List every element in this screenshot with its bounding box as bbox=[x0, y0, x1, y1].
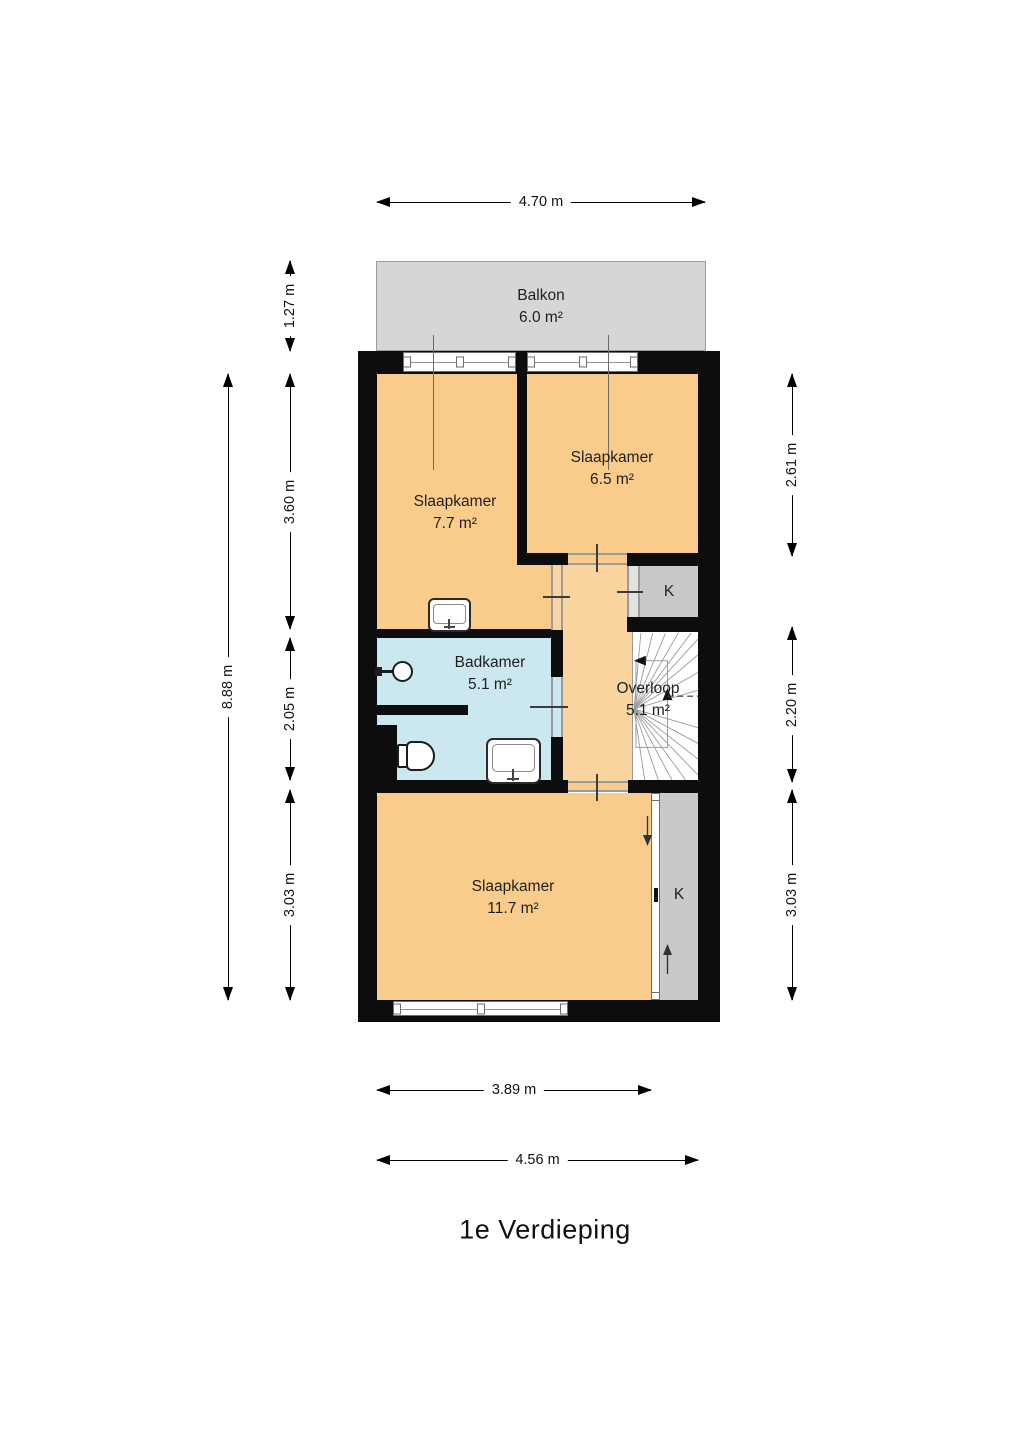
arrowhead-icon bbox=[787, 373, 797, 387]
arrowhead-icon bbox=[285, 987, 295, 1001]
shower-head bbox=[392, 661, 413, 682]
arrowhead-icon bbox=[787, 769, 797, 783]
toilet-bowl bbox=[406, 741, 435, 771]
window-mullion bbox=[527, 357, 535, 368]
door-tick bbox=[543, 596, 570, 598]
room-name: Slaapkamer bbox=[472, 876, 555, 898]
wall-lower-right bbox=[628, 780, 720, 793]
arrowhead-icon bbox=[685, 1155, 699, 1165]
dim-label: 3.60 m bbox=[281, 471, 299, 531]
window-mullion bbox=[630, 357, 638, 368]
door-tick bbox=[596, 774, 598, 801]
label-kast-onder: K bbox=[674, 884, 684, 906]
dim-label: 3.89 m bbox=[484, 1081, 544, 1099]
room-area: 7.7 m² bbox=[414, 513, 497, 535]
arrow-down-icon bbox=[641, 815, 654, 847]
arrowhead-icon bbox=[787, 626, 797, 640]
window-mullion bbox=[393, 1003, 401, 1014]
room-area: 5.1 m² bbox=[455, 674, 526, 696]
window-mullion bbox=[579, 357, 587, 368]
door-tick bbox=[596, 544, 598, 572]
dim-label: 4.70 m bbox=[511, 193, 571, 211]
arrowhead-icon bbox=[285, 789, 295, 803]
arrowhead-icon bbox=[285, 637, 295, 651]
wall-toilet-alcove bbox=[377, 725, 397, 780]
room-overloop bbox=[563, 565, 632, 782]
dim-label: 8.88 m bbox=[219, 657, 237, 717]
room-name: Badkamer bbox=[455, 652, 526, 674]
label-kast-midden: K bbox=[664, 581, 674, 603]
faucet-icon bbox=[444, 626, 455, 628]
arrowhead-icon bbox=[285, 767, 295, 781]
room-name: Slaapkamer bbox=[414, 491, 497, 513]
arrowhead-icon bbox=[285, 338, 295, 352]
label-slaapkamer-rechts: Slaapkamer 6.5 m² bbox=[571, 447, 654, 491]
arrowhead-icon bbox=[376, 1085, 390, 1095]
window-mullion bbox=[403, 357, 411, 368]
floor-plan: Balkon 6.0 m² Slaapkamer 7.7 m² Slaapkam… bbox=[0, 0, 1018, 1440]
dim-label: 3.03 m bbox=[783, 865, 801, 925]
dim-label: 2.20 m bbox=[783, 674, 801, 734]
wall-left bbox=[358, 351, 377, 1022]
sink-badkamer-basin bbox=[492, 744, 535, 772]
label-overloop: Overloop 5.1 m² bbox=[617, 678, 680, 722]
room-name: K bbox=[674, 884, 684, 906]
room-area: 6.0 m² bbox=[517, 307, 564, 329]
arrowhead-icon bbox=[787, 789, 797, 803]
track-end-top bbox=[651, 793, 660, 801]
label-balkon: Balkon 6.0 m² bbox=[517, 285, 564, 329]
dim-label: 2.05 m bbox=[281, 679, 299, 739]
dim-label: 3.03 m bbox=[281, 865, 299, 925]
door-tick bbox=[617, 591, 643, 593]
window-mullion bbox=[560, 1003, 568, 1014]
room-name: Overloop bbox=[617, 678, 680, 700]
wall-bedroom65-bottom-left bbox=[517, 553, 568, 565]
room-area: 5.1 m² bbox=[617, 700, 680, 722]
faucet-icon bbox=[507, 778, 519, 780]
dim-label: 1.27 m bbox=[281, 276, 299, 336]
arrowhead-icon bbox=[692, 197, 706, 207]
dim-label: 2.61 m bbox=[783, 435, 801, 495]
arrowhead-icon bbox=[787, 987, 797, 1001]
track-end-bottom bbox=[651, 992, 660, 1000]
track-handle bbox=[654, 888, 658, 902]
arrowhead-icon bbox=[376, 1155, 390, 1165]
dim-label: 4.56 m bbox=[507, 1151, 567, 1169]
arrowhead-icon bbox=[285, 260, 295, 274]
wall-bedroom65-bottom-right bbox=[627, 553, 698, 566]
window-mullion bbox=[508, 357, 516, 368]
floor-title: 1e Verdieping bbox=[459, 1215, 631, 1246]
label-slaapkamer-groot: Slaapkamer 11.7 m² bbox=[472, 876, 555, 920]
arrowhead-icon bbox=[285, 373, 295, 387]
room-name: K bbox=[664, 581, 674, 603]
wall-badkamer-top bbox=[377, 629, 563, 638]
wall-between-bedrooms bbox=[517, 374, 527, 553]
door-slaapkamer-groot bbox=[568, 781, 628, 792]
arrowhead-icon bbox=[223, 373, 233, 387]
wall-kast-bottom bbox=[627, 617, 698, 632]
arrowhead-icon bbox=[638, 1085, 652, 1095]
wall-shower-partition bbox=[377, 705, 468, 715]
wall-right bbox=[698, 351, 720, 1022]
label-slaapkamer-links: Slaapkamer 7.7 m² bbox=[414, 491, 497, 535]
arrowhead-icon bbox=[787, 543, 797, 557]
room-name: Balkon bbox=[517, 285, 564, 307]
door-swing-line bbox=[433, 335, 434, 470]
arrowhead-icon bbox=[223, 987, 233, 1001]
window-mullion bbox=[456, 357, 464, 368]
balcony-window-right bbox=[527, 352, 638, 372]
wall-overloop-left-lower bbox=[551, 737, 563, 782]
bottom-window bbox=[393, 1001, 568, 1016]
window-mullion bbox=[477, 1003, 485, 1014]
arrowhead-icon bbox=[285, 616, 295, 630]
balcony-window-left bbox=[403, 352, 516, 372]
room-area: 6.5 m² bbox=[571, 469, 654, 491]
room-area: 11.7 m² bbox=[472, 898, 555, 920]
arrowhead-icon bbox=[376, 197, 390, 207]
arrow-up-icon bbox=[661, 943, 674, 975]
label-badkamer: Badkamer 5.1 m² bbox=[455, 652, 526, 696]
door-tick bbox=[530, 706, 568, 708]
room-name: Slaapkamer bbox=[571, 447, 654, 469]
